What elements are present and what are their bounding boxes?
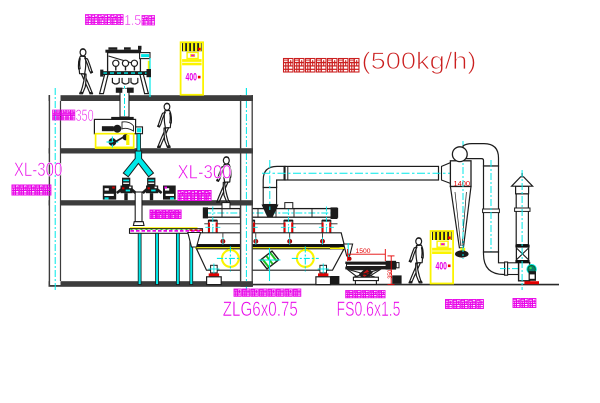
svg-text:(500kg/h): (500kg/h) <box>362 48 477 75</box>
svg-text:FS0.6x1.5: FS0.6x1.5 <box>337 298 401 321</box>
svg-text:1500: 1500 <box>356 248 371 255</box>
svg-text:400: 400 <box>436 260 448 272</box>
svg-text:XL-300: XL-300 <box>178 163 232 184</box>
svg-text:ZLG6x0.75: ZLG6x0.75 <box>223 298 298 321</box>
svg-text:1.5: 1.5 <box>124 12 141 29</box>
svg-text:350: 350 <box>387 269 394 278</box>
svg-text:350: 350 <box>76 106 94 125</box>
svg-text:400: 400 <box>186 72 198 84</box>
svg-text:XL-300: XL-300 <box>14 160 63 181</box>
